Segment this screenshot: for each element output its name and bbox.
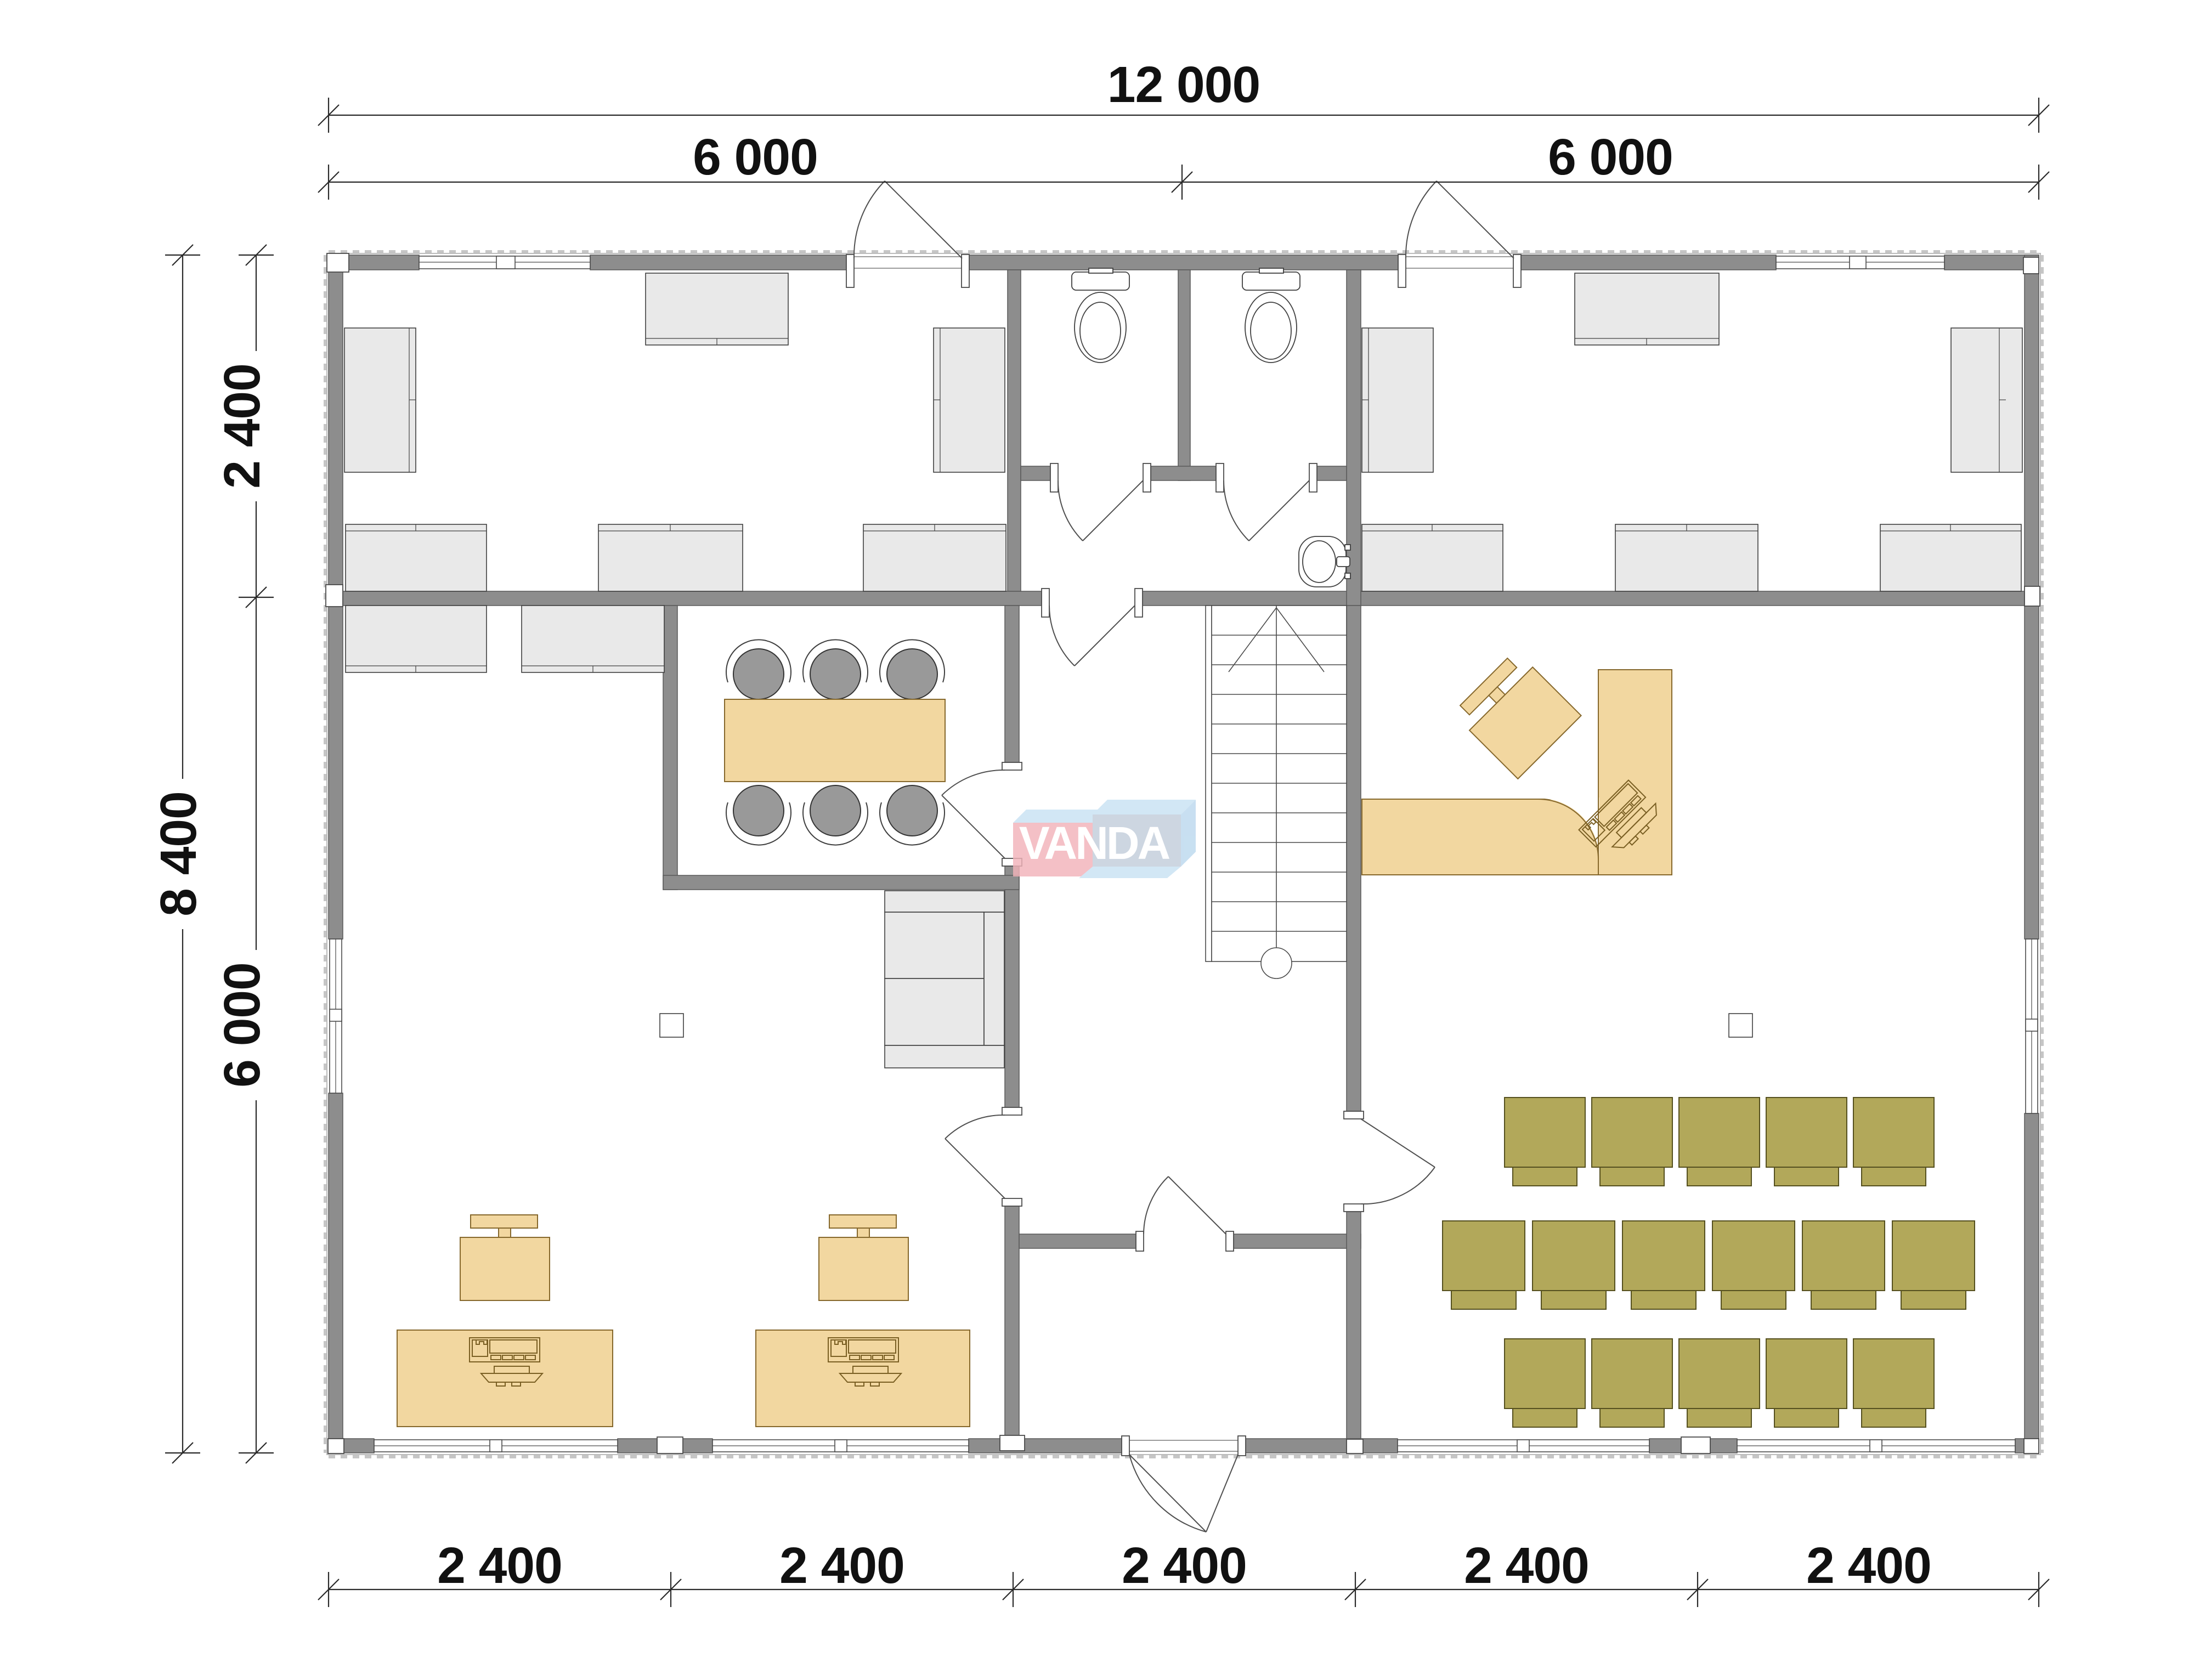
svg-text:6 000: 6 000 xyxy=(693,128,818,185)
svg-text:2 400: 2 400 xyxy=(1122,1537,1247,1594)
svg-text:8 400: 8 400 xyxy=(150,791,207,917)
svg-text:2 400: 2 400 xyxy=(213,364,270,489)
svg-text:2 400: 2 400 xyxy=(437,1537,562,1594)
svg-text:6 000: 6 000 xyxy=(1548,128,1673,185)
svg-text:2 400: 2 400 xyxy=(1806,1537,1931,1594)
svg-text:6 000: 6 000 xyxy=(213,963,270,1088)
svg-text:2 400: 2 400 xyxy=(1464,1537,1589,1594)
svg-text:2 400: 2 400 xyxy=(779,1537,904,1594)
svg-text:12 000: 12 000 xyxy=(1107,56,1260,113)
svg-text:VANDA: VANDA xyxy=(1019,817,1170,869)
